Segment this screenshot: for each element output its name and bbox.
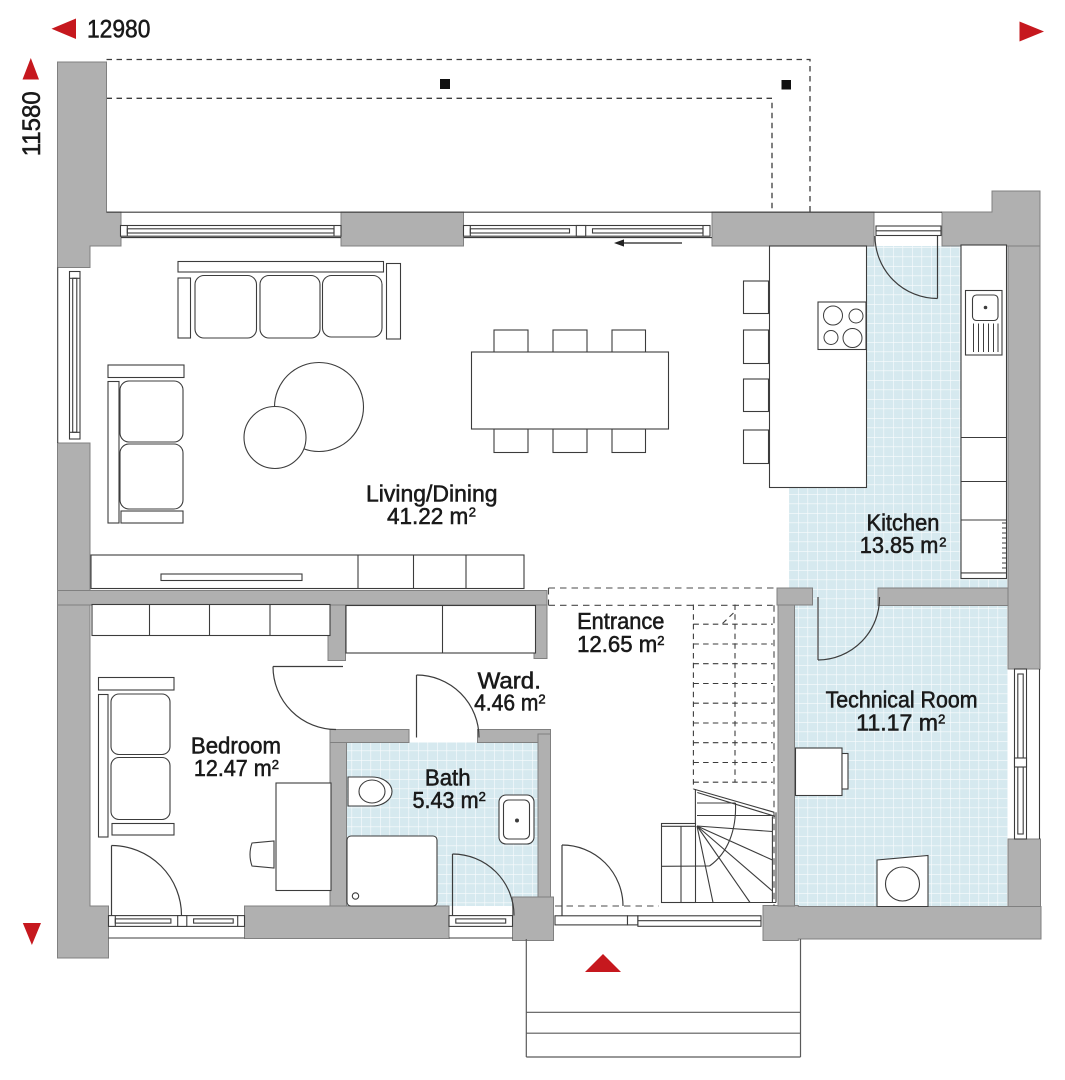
svg-text:12.65 m: 12.65 m — [577, 631, 657, 657]
svg-text:12.47 m: 12.47 m — [194, 755, 272, 781]
svg-text:41.22 m: 41.22 m — [387, 503, 468, 529]
svg-text:13.85 m: 13.85 m — [860, 532, 939, 558]
svg-text:2: 2 — [479, 789, 486, 804]
svg-text:2: 2 — [939, 534, 946, 549]
svg-text:2: 2 — [538, 692, 545, 707]
svg-text:11.17 m: 11.17 m — [856, 709, 938, 735]
svg-text:2: 2 — [657, 633, 664, 648]
svg-text:4.46 m: 4.46 m — [474, 690, 538, 716]
svg-text:2: 2 — [272, 757, 279, 772]
svg-text:2: 2 — [469, 505, 476, 520]
svg-text:11580: 11580 — [18, 91, 46, 156]
svg-text:2: 2 — [938, 711, 945, 726]
svg-text:5.43 m: 5.43 m — [413, 787, 479, 813]
svg-text:12980: 12980 — [87, 16, 150, 44]
